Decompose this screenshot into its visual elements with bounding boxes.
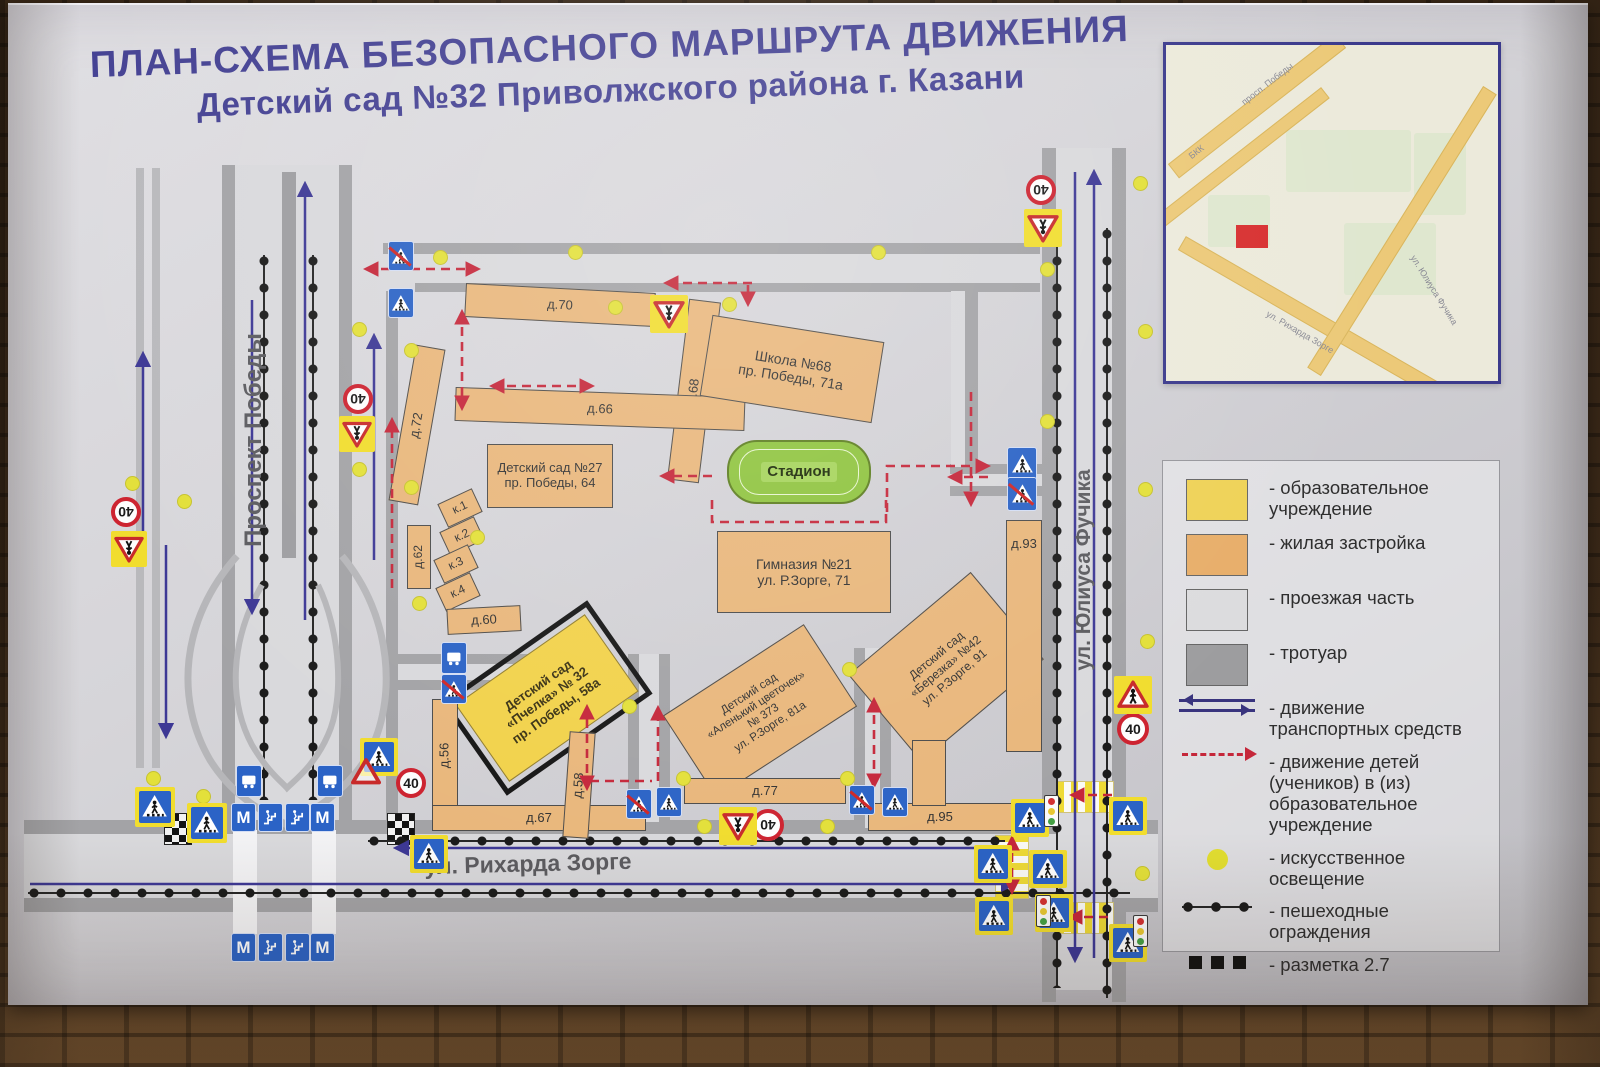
building-label: к.1 — [450, 499, 470, 518]
street-light-dot — [608, 300, 623, 315]
legend-item-lighting: - искусственное освещение — [1179, 847, 1487, 890]
traffic-light — [1036, 895, 1051, 927]
building-label: д.60 — [471, 612, 497, 628]
sidewalk-edge — [136, 168, 144, 768]
no-pedestrian-crossing-sign — [1007, 477, 1037, 511]
legend-item-education: - образовательное учреждение — [1179, 477, 1487, 521]
building-label: д.95 — [927, 810, 953, 825]
red-lamp — [1048, 798, 1055, 805]
street-label-fuchika: ул. Юлиуса Фучика — [1072, 469, 1096, 670]
poster-title: ПЛАН-СХЕМА БЕЗОПАСНОГО МАРШРУТА ДВИЖЕНИЯ… — [69, 5, 1151, 129]
metro-letter: М — [315, 808, 329, 828]
street-light-dot — [1040, 414, 1055, 429]
legend-item-fencing: - пешеходные ограждения — [1179, 900, 1487, 943]
building-d95x — [912, 740, 946, 806]
sidewalk — [339, 165, 352, 820]
pedestrian-crossing-sign — [882, 787, 908, 817]
street-light-dot — [722, 297, 737, 312]
street-light-dot — [125, 476, 140, 491]
building-gymnasium21: Гимназия №21 ул. Р.Зорге, 71 — [717, 531, 891, 613]
legend-item-marking: - разметка 2.7 — [1179, 954, 1487, 975]
crossing-sign-inner — [139, 791, 171, 823]
bus-stop-sign — [317, 765, 343, 797]
building-d60: д.60 — [446, 605, 521, 635]
underpass-sign — [285, 803, 310, 832]
building-d56: д.56 — [432, 699, 458, 811]
building-label: Детский сад №27 пр. Победы, 64 — [497, 461, 602, 491]
red-lamp — [1137, 918, 1144, 925]
schematic-map: ПЛАН-СХЕМА БЕЗОПАСНОГО МАРШРУТА ДВИЖЕНИЯ… — [0, 0, 1600, 1067]
sidewalk — [24, 898, 1056, 912]
green-lamp — [1040, 918, 1047, 925]
pedestrian-crossing-sign-fluorescent — [187, 803, 227, 843]
building-d67: д.67 — [432, 805, 646, 831]
warning-children-sign — [339, 416, 375, 452]
metro-entrance-sign: М — [231, 803, 256, 832]
no-pedestrian-crossing-sign — [626, 789, 652, 819]
road-marking-2-7-icon — [1189, 956, 1246, 969]
sidewalk-swatch — [1186, 644, 1248, 686]
building-label: д.72 — [407, 411, 426, 439]
street-light-dot — [433, 250, 448, 265]
street-light-dot — [352, 322, 367, 337]
street-light-dot — [1040, 262, 1055, 277]
no-pedestrian-crossing-sign — [388, 241, 414, 271]
street-light-dot — [871, 245, 886, 260]
warning-children-sign — [1114, 676, 1152, 714]
vehicle-arrows-icon — [1179, 699, 1255, 712]
speed-limit-40-sign: 40 — [343, 384, 373, 414]
path-internal — [951, 291, 965, 467]
building-kindergarten27: Детский сад №27 пр. Победы, 64 — [487, 444, 613, 508]
warning-children-sign — [1024, 209, 1062, 247]
speed-limit-value: 40 — [403, 775, 419, 791]
sidewalk — [965, 291, 978, 467]
warning-children-sign — [719, 807, 757, 845]
underpass-strip — [312, 830, 336, 934]
pedestrian-crossing-sign — [1007, 447, 1037, 481]
crossing-sign-inner — [979, 901, 1009, 931]
building-label: Детский сад «Березка» №42 ул. Р.Зорге, 9… — [899, 623, 993, 711]
underpass-sign — [285, 933, 310, 962]
inset-city-map: просп. Победы БКК ул. Рихарда Зорге ул. … — [1163, 42, 1501, 384]
pedestrian-crossing-sign — [656, 787, 682, 817]
building-label: д.56 — [438, 742, 453, 768]
roadway-internal — [383, 254, 1040, 283]
building-label: Школа №68 пр. Победы, 71а — [737, 345, 846, 393]
street-light-dot — [1133, 176, 1148, 191]
street-light-dot — [1140, 634, 1155, 649]
crossing-sign-inner — [1015, 803, 1045, 833]
building-label: д.77 — [752, 784, 778, 799]
warning-triangle-sign — [351, 757, 381, 787]
roadway-swatch — [1186, 589, 1248, 631]
metro-letter: М — [315, 938, 329, 958]
building-label: д.70 — [547, 297, 573, 313]
sidewalk-edge — [152, 168, 160, 768]
building-label: д.62 — [412, 545, 426, 569]
warning-children-sign — [111, 531, 147, 567]
street-label-pobedy: Проспект Победы — [240, 333, 268, 547]
pedestrian-fence-icon — [1182, 902, 1252, 912]
street-light-dot — [404, 343, 419, 358]
speed-limit-value: 40 — [760, 817, 776, 833]
legend-item-children-route: - движение детей (учеников) в (из) образ… — [1179, 751, 1487, 836]
street-light-dot — [842, 662, 857, 677]
street-light-dot — [1138, 482, 1153, 497]
traffic-light — [1133, 915, 1148, 947]
inset-location-marker — [1236, 225, 1268, 248]
crossing-sign-inner — [978, 849, 1008, 879]
legend-item-roadway: - проезжая часть — [1179, 587, 1487, 631]
building-pchelka: Детский сад «Пчелка» № 32 пр. Победы, 58… — [455, 614, 638, 782]
street-light-dot — [840, 771, 855, 786]
speed-limit-40-sign: 40 — [111, 497, 141, 527]
street-light-dot — [352, 462, 367, 477]
street-light-dot — [820, 819, 835, 834]
pedestrian-crossing-sign-fluorescent — [410, 835, 448, 873]
building-stadium: Стадион — [727, 440, 871, 504]
pedestrian-fence — [28, 888, 1130, 898]
bus-stop-sign — [236, 765, 262, 797]
no-pedestrian-crossing-sign — [441, 674, 467, 704]
speed-limit-value: 40 — [350, 391, 366, 407]
street-light-dot — [177, 494, 192, 509]
building-alenky: Детский сад «Аленький цветочек» № 373 ул… — [663, 624, 857, 798]
metro-letter: М — [236, 808, 250, 828]
underpass-sign — [258, 803, 283, 832]
no-pedestrian-crossing-sign — [849, 785, 875, 815]
speed-limit-40-sign: 40 — [396, 768, 426, 798]
speed-limit-value: 40 — [1033, 182, 1049, 198]
building-label: д.67 — [526, 811, 552, 826]
building-d77: д.77 — [684, 778, 846, 804]
pedestrian-crossing-sign-fluorescent — [975, 897, 1013, 935]
speed-limit-value: 40 — [118, 504, 134, 520]
building-label: д.93 — [1011, 537, 1037, 552]
street-light-dot — [1138, 324, 1153, 339]
street-light-dot — [146, 771, 161, 786]
building-label: Детский сад «Аленький цветочек» № 373 ул… — [698, 658, 823, 765]
street-light-dot — [676, 771, 691, 786]
green-lamp — [1137, 938, 1144, 945]
street-light-dot — [622, 699, 637, 714]
street-light-dot — [470, 530, 485, 545]
metro-entrance-sign: М — [310, 933, 335, 962]
building-d93: д.93 — [1006, 520, 1042, 752]
inset-block — [1286, 130, 1411, 192]
legend-item-vehicle-traffic: - движение транспортных средств — [1179, 697, 1487, 740]
legend-item-sidewalk: - тротуар — [1179, 642, 1487, 686]
crossing-sign-inner — [414, 839, 444, 869]
legend-item-residential: - жилая застройка — [1179, 532, 1487, 576]
residential-swatch — [1186, 534, 1248, 576]
crossing-sign-inner — [1113, 801, 1143, 831]
pedestrian-fence — [308, 255, 318, 800]
crossing-sign-inner — [191, 807, 223, 839]
street-light-dot — [697, 819, 712, 834]
street-light-dot — [1135, 866, 1150, 881]
building-label: к.2 — [452, 527, 472, 546]
street-light-icon — [1207, 849, 1228, 870]
street-label-zorge: ул. Рихарда Зорге — [424, 848, 632, 880]
pedestrian-fence — [368, 836, 1005, 846]
pedestrian-crossing-sign-fluorescent — [974, 845, 1012, 883]
education-swatch — [1186, 479, 1248, 521]
sidewalk — [222, 165, 235, 820]
building-label: д.66 — [587, 401, 613, 417]
underpass-sign — [258, 933, 283, 962]
building-label: Гимназия №21 ул. Р.Зорге, 71 — [756, 556, 852, 588]
building-d62: д.62 — [407, 525, 431, 589]
photo-stage: ПЛАН-СХЕМА БЕЗОПАСНОГО МАРШРУТА ДВИЖЕНИЯ… — [0, 0, 1600, 1067]
sidewalk — [383, 243, 1040, 254]
underpass-strip — [233, 830, 257, 934]
building-label: к.3 — [446, 555, 466, 574]
yellow-lamp — [1137, 928, 1144, 935]
pedestrian-crossing-sign-fluorescent — [1109, 797, 1147, 835]
warning-children-sign — [650, 295, 688, 333]
red-lamp — [1040, 898, 1047, 905]
street-light-dot — [196, 789, 211, 804]
street-light-dot — [404, 480, 419, 495]
bus-stop-sign — [441, 642, 467, 674]
building-label: к.4 — [448, 583, 468, 602]
pedestrian-crossing-sign-fluorescent — [135, 787, 175, 827]
building-label: Стадион — [761, 462, 837, 481]
metro-entrance-sign: М — [231, 933, 256, 962]
speed-limit-40-sign: 40 — [1026, 175, 1056, 205]
pedestrian-crossing-sign — [388, 288, 414, 318]
speed-limit-40-sign: 40 — [1117, 713, 1149, 745]
median-pobedy — [282, 172, 296, 558]
metro-entrance-sign: М — [310, 803, 335, 832]
metro-letter: М — [236, 938, 250, 958]
pedestrian-fence — [1102, 228, 1112, 998]
children-route-arrow-icon — [1182, 753, 1252, 756]
pedestrian-crossing-sign-fluorescent — [1029, 850, 1067, 888]
traffic-light — [1044, 795, 1059, 827]
crossing-sign-inner — [1033, 854, 1063, 884]
building-label: д.58 — [571, 772, 588, 799]
map-legend: - образовательное учреждение - жилая зас… — [1162, 460, 1500, 952]
green-lamp — [1048, 818, 1055, 825]
yellow-lamp — [1048, 808, 1055, 815]
yellow-lamp — [1040, 908, 1047, 915]
speed-limit-value: 40 — [1125, 721, 1141, 737]
street-light-dot — [412, 596, 427, 611]
street-light-dot — [568, 245, 583, 260]
